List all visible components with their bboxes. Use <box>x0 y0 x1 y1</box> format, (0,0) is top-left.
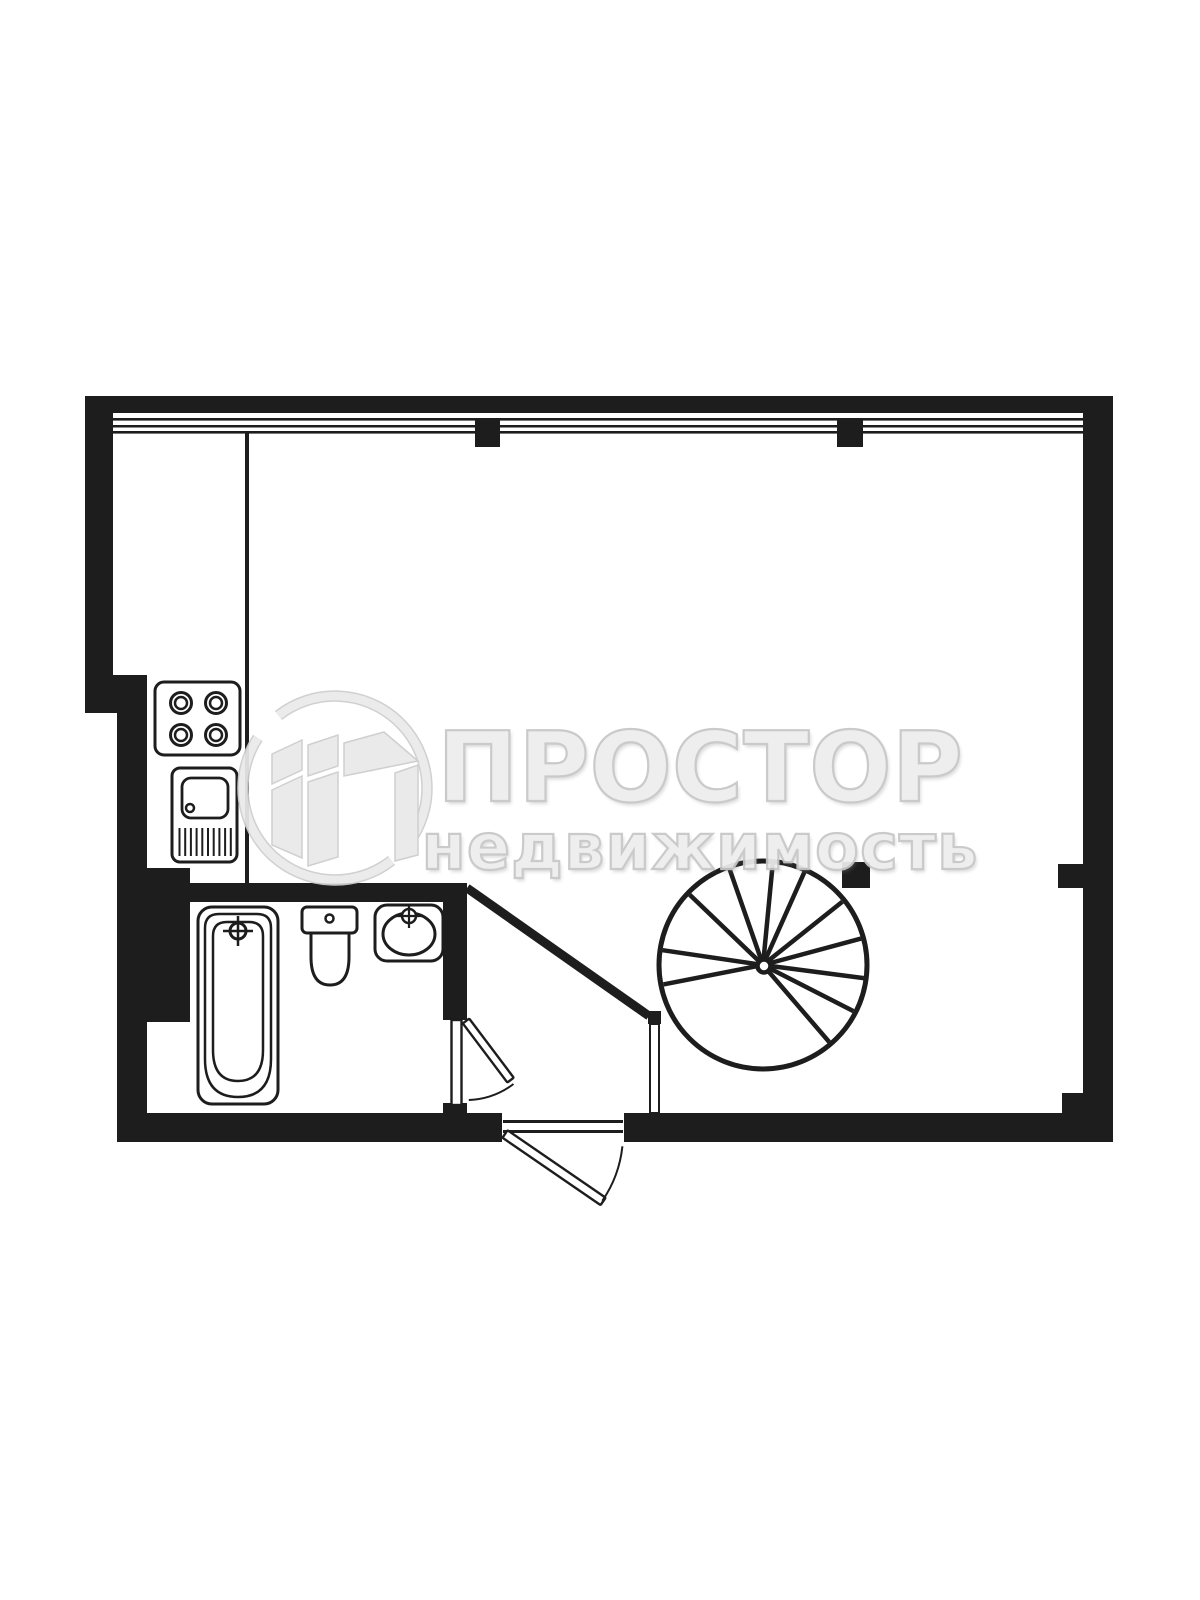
door-leaf <box>502 1130 605 1205</box>
threshold-line <box>503 1120 623 1123</box>
faucet-icon <box>186 804 194 812</box>
column-right-wall <box>1058 864 1083 888</box>
wall-left-notch <box>85 675 147 713</box>
threshold-line <box>503 1130 623 1133</box>
window-glazing-line <box>113 425 1083 428</box>
hall-partition-cap <box>648 1011 661 1024</box>
flush-button-icon <box>326 915 334 923</box>
toilet <box>302 907 357 985</box>
window-glazing-line <box>113 418 1083 421</box>
washbasin <box>375 904 443 961</box>
toilet-bowl <box>311 933 349 985</box>
door-swing-arc <box>469 1084 514 1100</box>
stove <box>155 682 240 755</box>
bathroom-wall-top <box>190 883 467 902</box>
wall-bottom-left <box>117 1113 502 1142</box>
wall-right <box>1083 396 1113 1142</box>
wall-left-upper <box>85 413 113 713</box>
floor-plan <box>0 0 1200 1600</box>
stair-tread <box>663 965 763 984</box>
entry-door <box>502 1120 623 1205</box>
kitchen-partition-line <box>245 433 249 883</box>
wall-left-lower <box>117 713 147 1142</box>
door-leaf <box>463 1019 514 1083</box>
window-band <box>113 418 1083 447</box>
bathroom-door <box>452 1019 514 1105</box>
window-mullion <box>837 418 863 447</box>
stair-tread <box>763 965 829 1042</box>
duct-shaft <box>147 868 190 1022</box>
spiral-staircase <box>659 861 867 1069</box>
door-jamb <box>452 1020 462 1105</box>
bathroom-wall-right <box>443 902 467 1020</box>
hallway-diagonal-wall <box>467 888 649 1016</box>
stair-center-post <box>758 960 771 973</box>
floorplan-page: ПРОСТОР недвижимость <box>0 0 1200 1600</box>
wall-bottom-right <box>624 1113 1113 1142</box>
door-swing-arc <box>602 1146 622 1201</box>
hall-thin-partition <box>650 1024 659 1113</box>
kitchen-sink <box>172 768 237 862</box>
column-mid <box>842 862 870 888</box>
bathtub <box>198 907 278 1104</box>
window-mullion <box>475 419 500 447</box>
column-bottom-right <box>1062 1093 1083 1113</box>
wall-top <box>85 396 1113 413</box>
window-glazing-line <box>113 431 1083 434</box>
stove-body <box>155 682 240 755</box>
